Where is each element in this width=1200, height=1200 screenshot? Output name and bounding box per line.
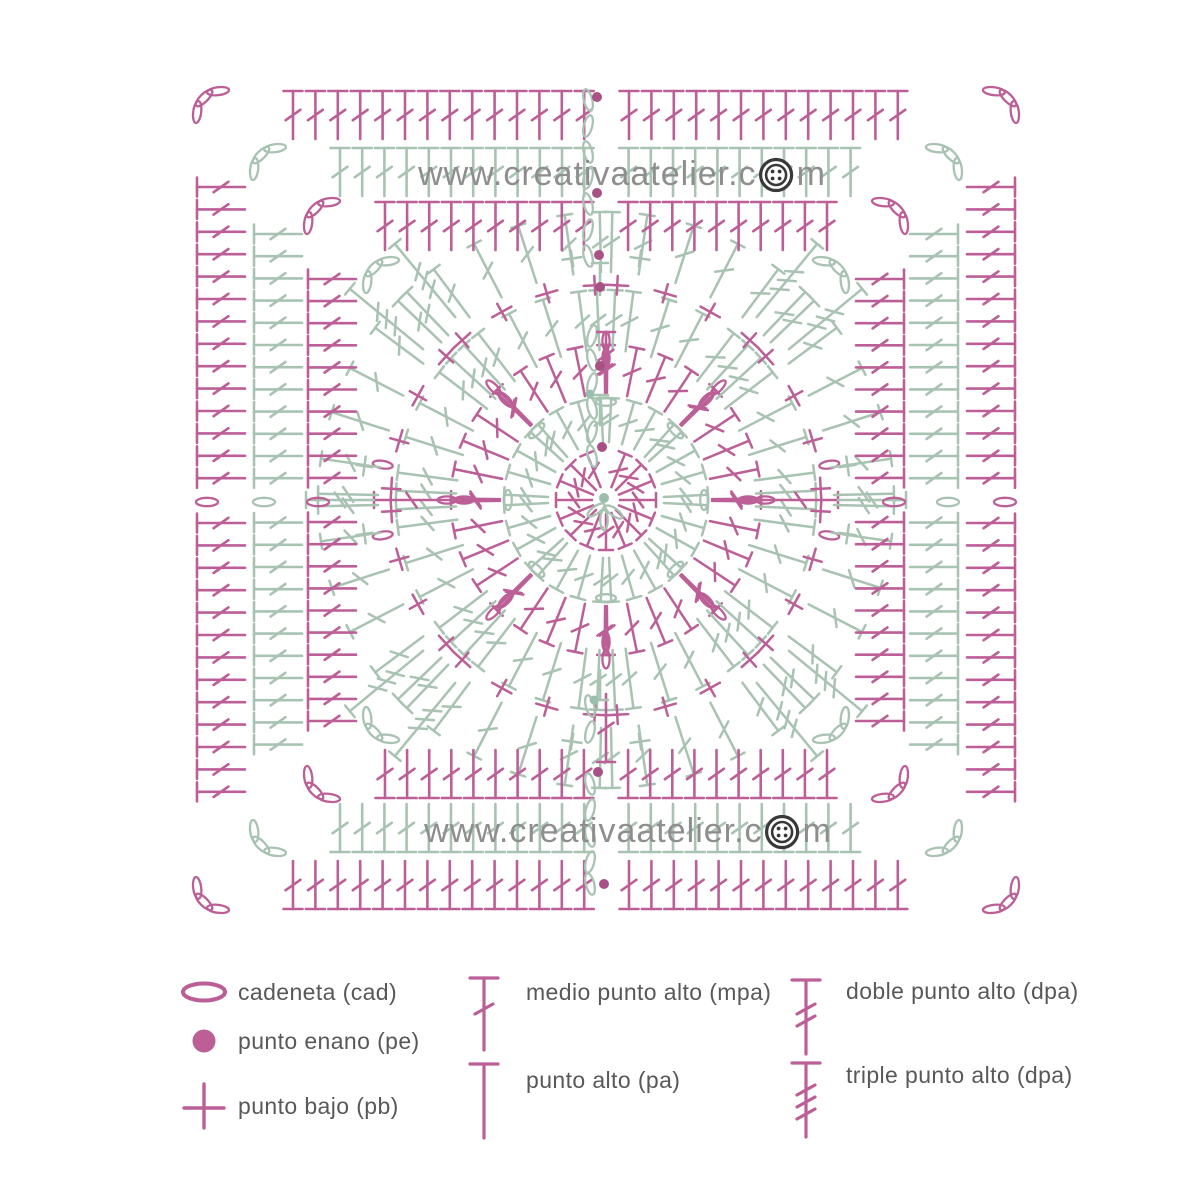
watermark-text-prefix: www.creativaatelier.c (418, 155, 756, 194)
half-double-symbol (460, 974, 512, 1056)
legend-item-medio-punto-alto: medio punto alto (mpa) (460, 974, 771, 1056)
watermark-text-suffix: m (803, 812, 832, 851)
single-crochet-symbol (178, 1081, 234, 1131)
crochet-pattern-page: www.creativaatelier.c m www.creativaatel… (0, 0, 1200, 1200)
watermark-text-suffix: m (797, 155, 826, 194)
legend-label: punto bajo (pb) (238, 1093, 399, 1119)
legend-label: cadeneta (cad) (238, 979, 397, 1005)
legend-item-punto-bajo: punto bajo (pb) (178, 1081, 399, 1131)
double-crochet-symbol (460, 1060, 512, 1142)
legend-label: triple punto alto (dpa) (846, 1062, 1073, 1088)
legend-item-cadeneta: cadeneta (cad) (178, 967, 397, 1017)
double-treble-symbol (782, 1059, 834, 1141)
legend-label: punto enano (pe) (238, 1028, 420, 1054)
button-icon (759, 157, 795, 193)
watermark-bottom: www.creativaatelier.c m (424, 812, 832, 851)
button-icon (765, 814, 801, 850)
treble-symbol (782, 976, 834, 1058)
legend-label: doble punto alto (dpa) (846, 978, 1079, 1004)
chain-symbol (178, 967, 234, 1017)
legend-label: punto alto (pa) (526, 1067, 680, 1093)
legend-item-punto-alto: punto alto (pa) (460, 1060, 680, 1142)
legend-item-triple-punto-alto: triple punto alto (dpa) (782, 1059, 1073, 1141)
legend-item-punto-enano: punto enano (pe) (178, 1016, 420, 1066)
watermark-text-prefix: www.creativaatelier.c (424, 812, 762, 851)
slip-stitch-symbol (178, 1016, 234, 1066)
legend-label: medio punto alto (mpa) (526, 979, 771, 1005)
legend-item-doble-punto-alto: doble punto alto (dpa) (782, 976, 1079, 1058)
watermark-top: www.creativaatelier.c m (418, 155, 826, 194)
